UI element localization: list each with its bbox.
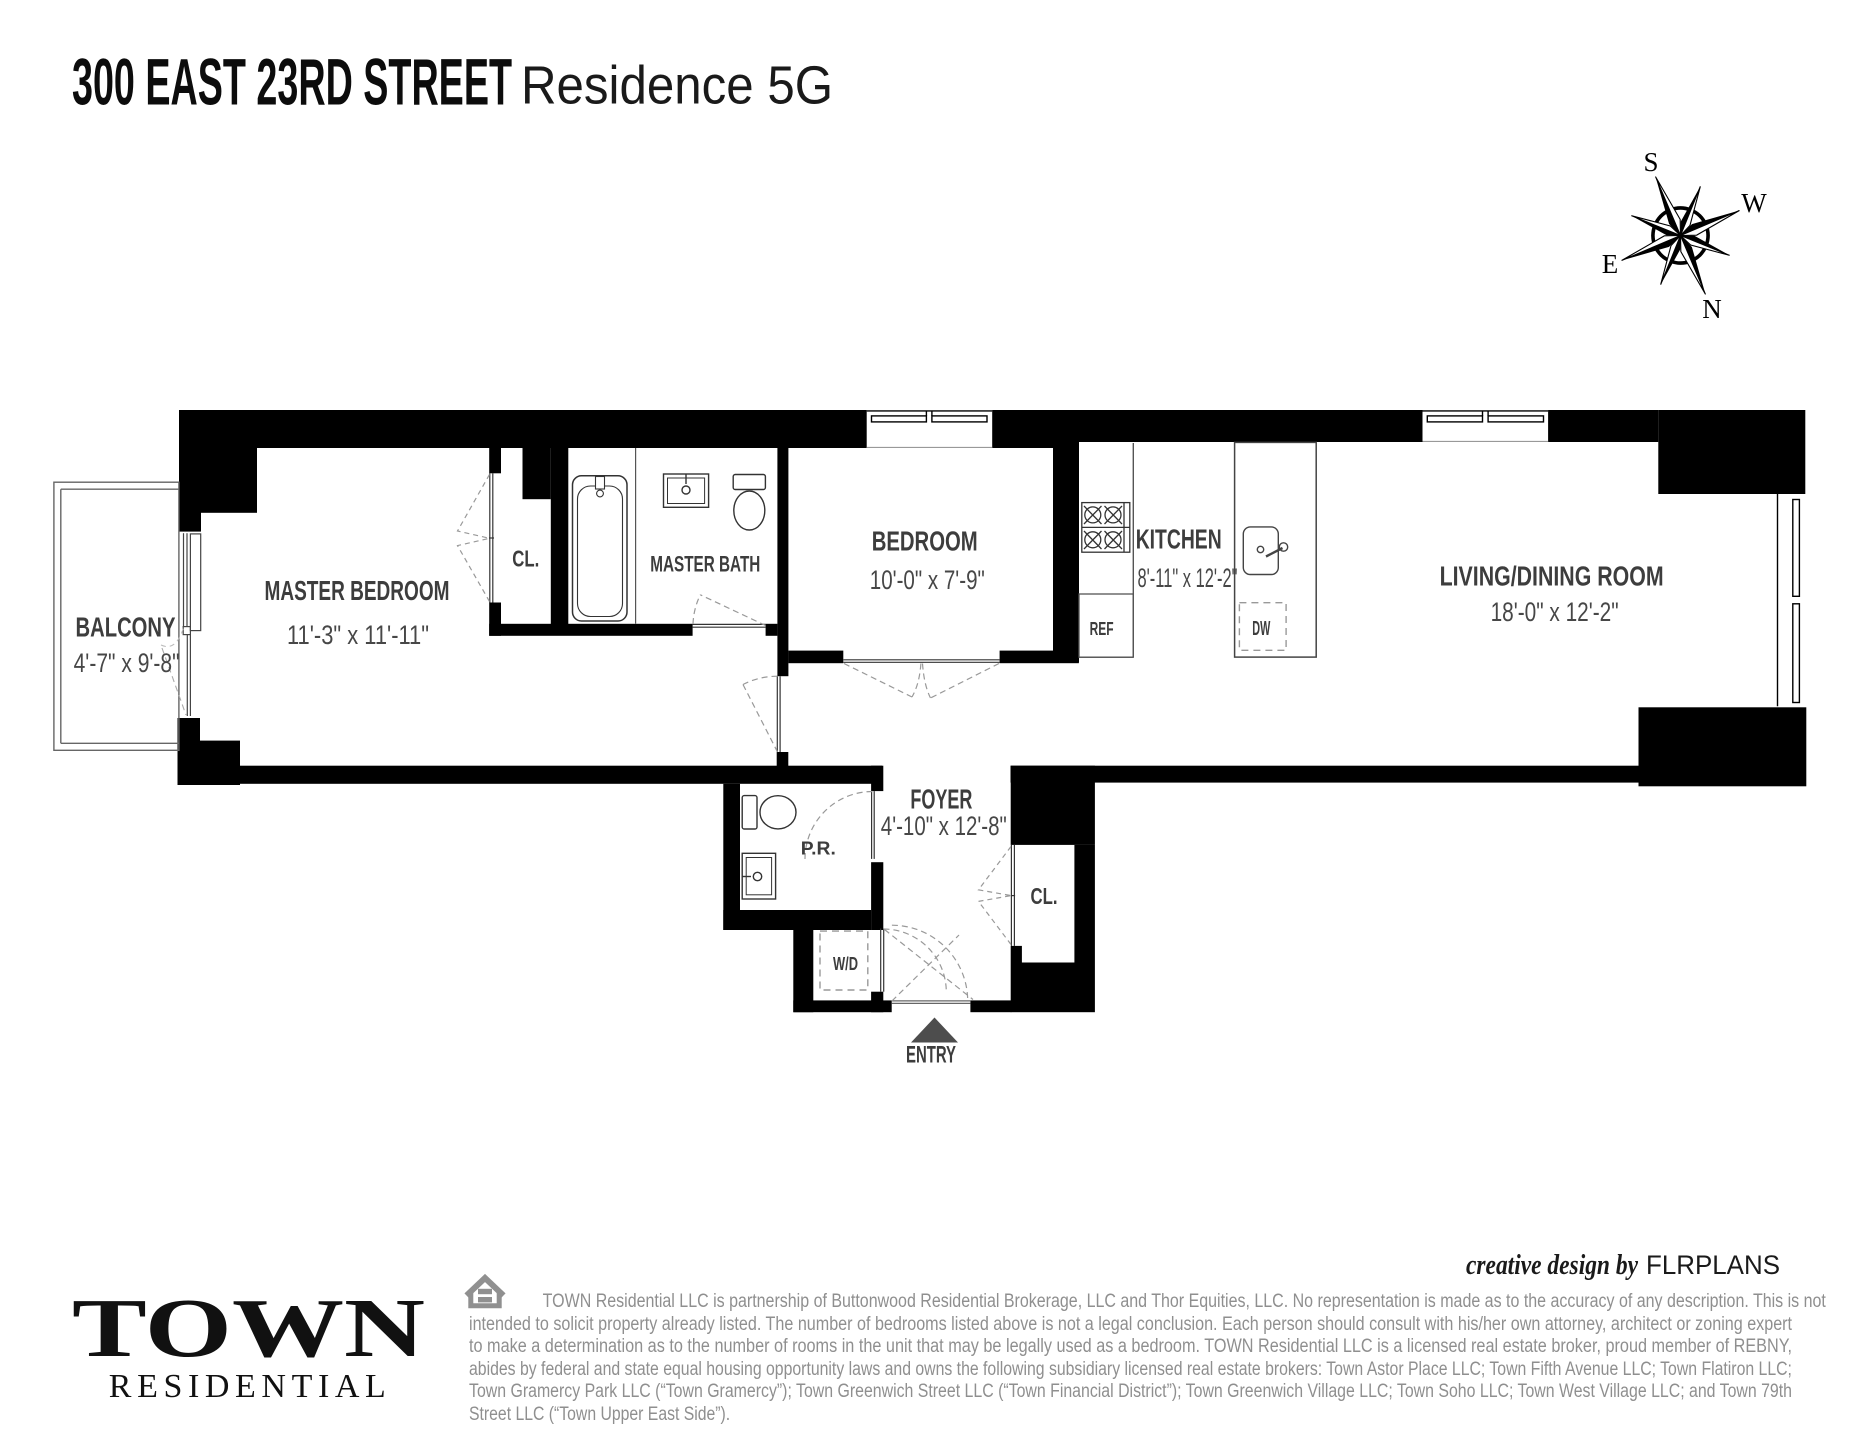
- svg-text:BEDROOM: BEDROOM: [872, 526, 978, 557]
- svg-text:18'-0" x 12'-2": 18'-0" x 12'-2": [1491, 597, 1619, 627]
- svg-text:FLRPLANS: FLRPLANS: [1646, 1250, 1780, 1280]
- svg-text:MASTER BATH: MASTER BATH: [650, 552, 760, 577]
- svg-text:300 EAST 23RD STREET: 300 EAST 23RD STREET: [72, 45, 512, 119]
- svg-text:KITCHEN: KITCHEN: [1136, 524, 1222, 555]
- svg-text:11'-3" x 11'-11": 11'-3" x 11'-11": [287, 620, 429, 650]
- svg-text:W/D: W/D: [833, 954, 858, 974]
- svg-text:LIVING/DINING ROOM: LIVING/DINING ROOM: [1440, 561, 1664, 592]
- svg-text:10'-0" x 7'-9": 10'-0" x 7'-9": [870, 565, 985, 595]
- svg-text:8'-11" x 12'-2": 8'-11" x 12'-2": [1138, 563, 1238, 593]
- svg-text:TOWN: TOWN: [72, 1282, 425, 1375]
- svg-text:RESIDENTIAL: RESIDENTIAL: [109, 1368, 386, 1405]
- svg-text:P.R.: P.R.: [801, 838, 836, 858]
- svg-text:4'-7" x 9'-8": 4'-7" x 9'-8": [74, 648, 180, 678]
- svg-text:W: W: [1741, 188, 1767, 218]
- svg-text:CL.: CL.: [512, 546, 539, 572]
- svg-text:E: E: [1602, 249, 1619, 279]
- svg-text:CL.: CL.: [1031, 883, 1058, 909]
- svg-text:DW: DW: [1252, 618, 1270, 640]
- svg-text:Residence 5G: Residence 5G: [521, 56, 833, 116]
- svg-text:FOYER: FOYER: [910, 783, 972, 814]
- svg-text:BALCONY: BALCONY: [76, 612, 176, 643]
- svg-text:N: N: [1702, 294, 1722, 324]
- svg-text:creative design by: creative design by: [1466, 1249, 1638, 1281]
- svg-text:REF: REF: [1090, 619, 1114, 639]
- svg-text:4'-10" x 12'-8": 4'-10" x 12'-8": [881, 811, 1007, 841]
- svg-text:ENTRY: ENTRY: [906, 1042, 956, 1069]
- svg-text:S: S: [1643, 147, 1658, 177]
- svg-text:MASTER BEDROOM: MASTER BEDROOM: [265, 575, 450, 606]
